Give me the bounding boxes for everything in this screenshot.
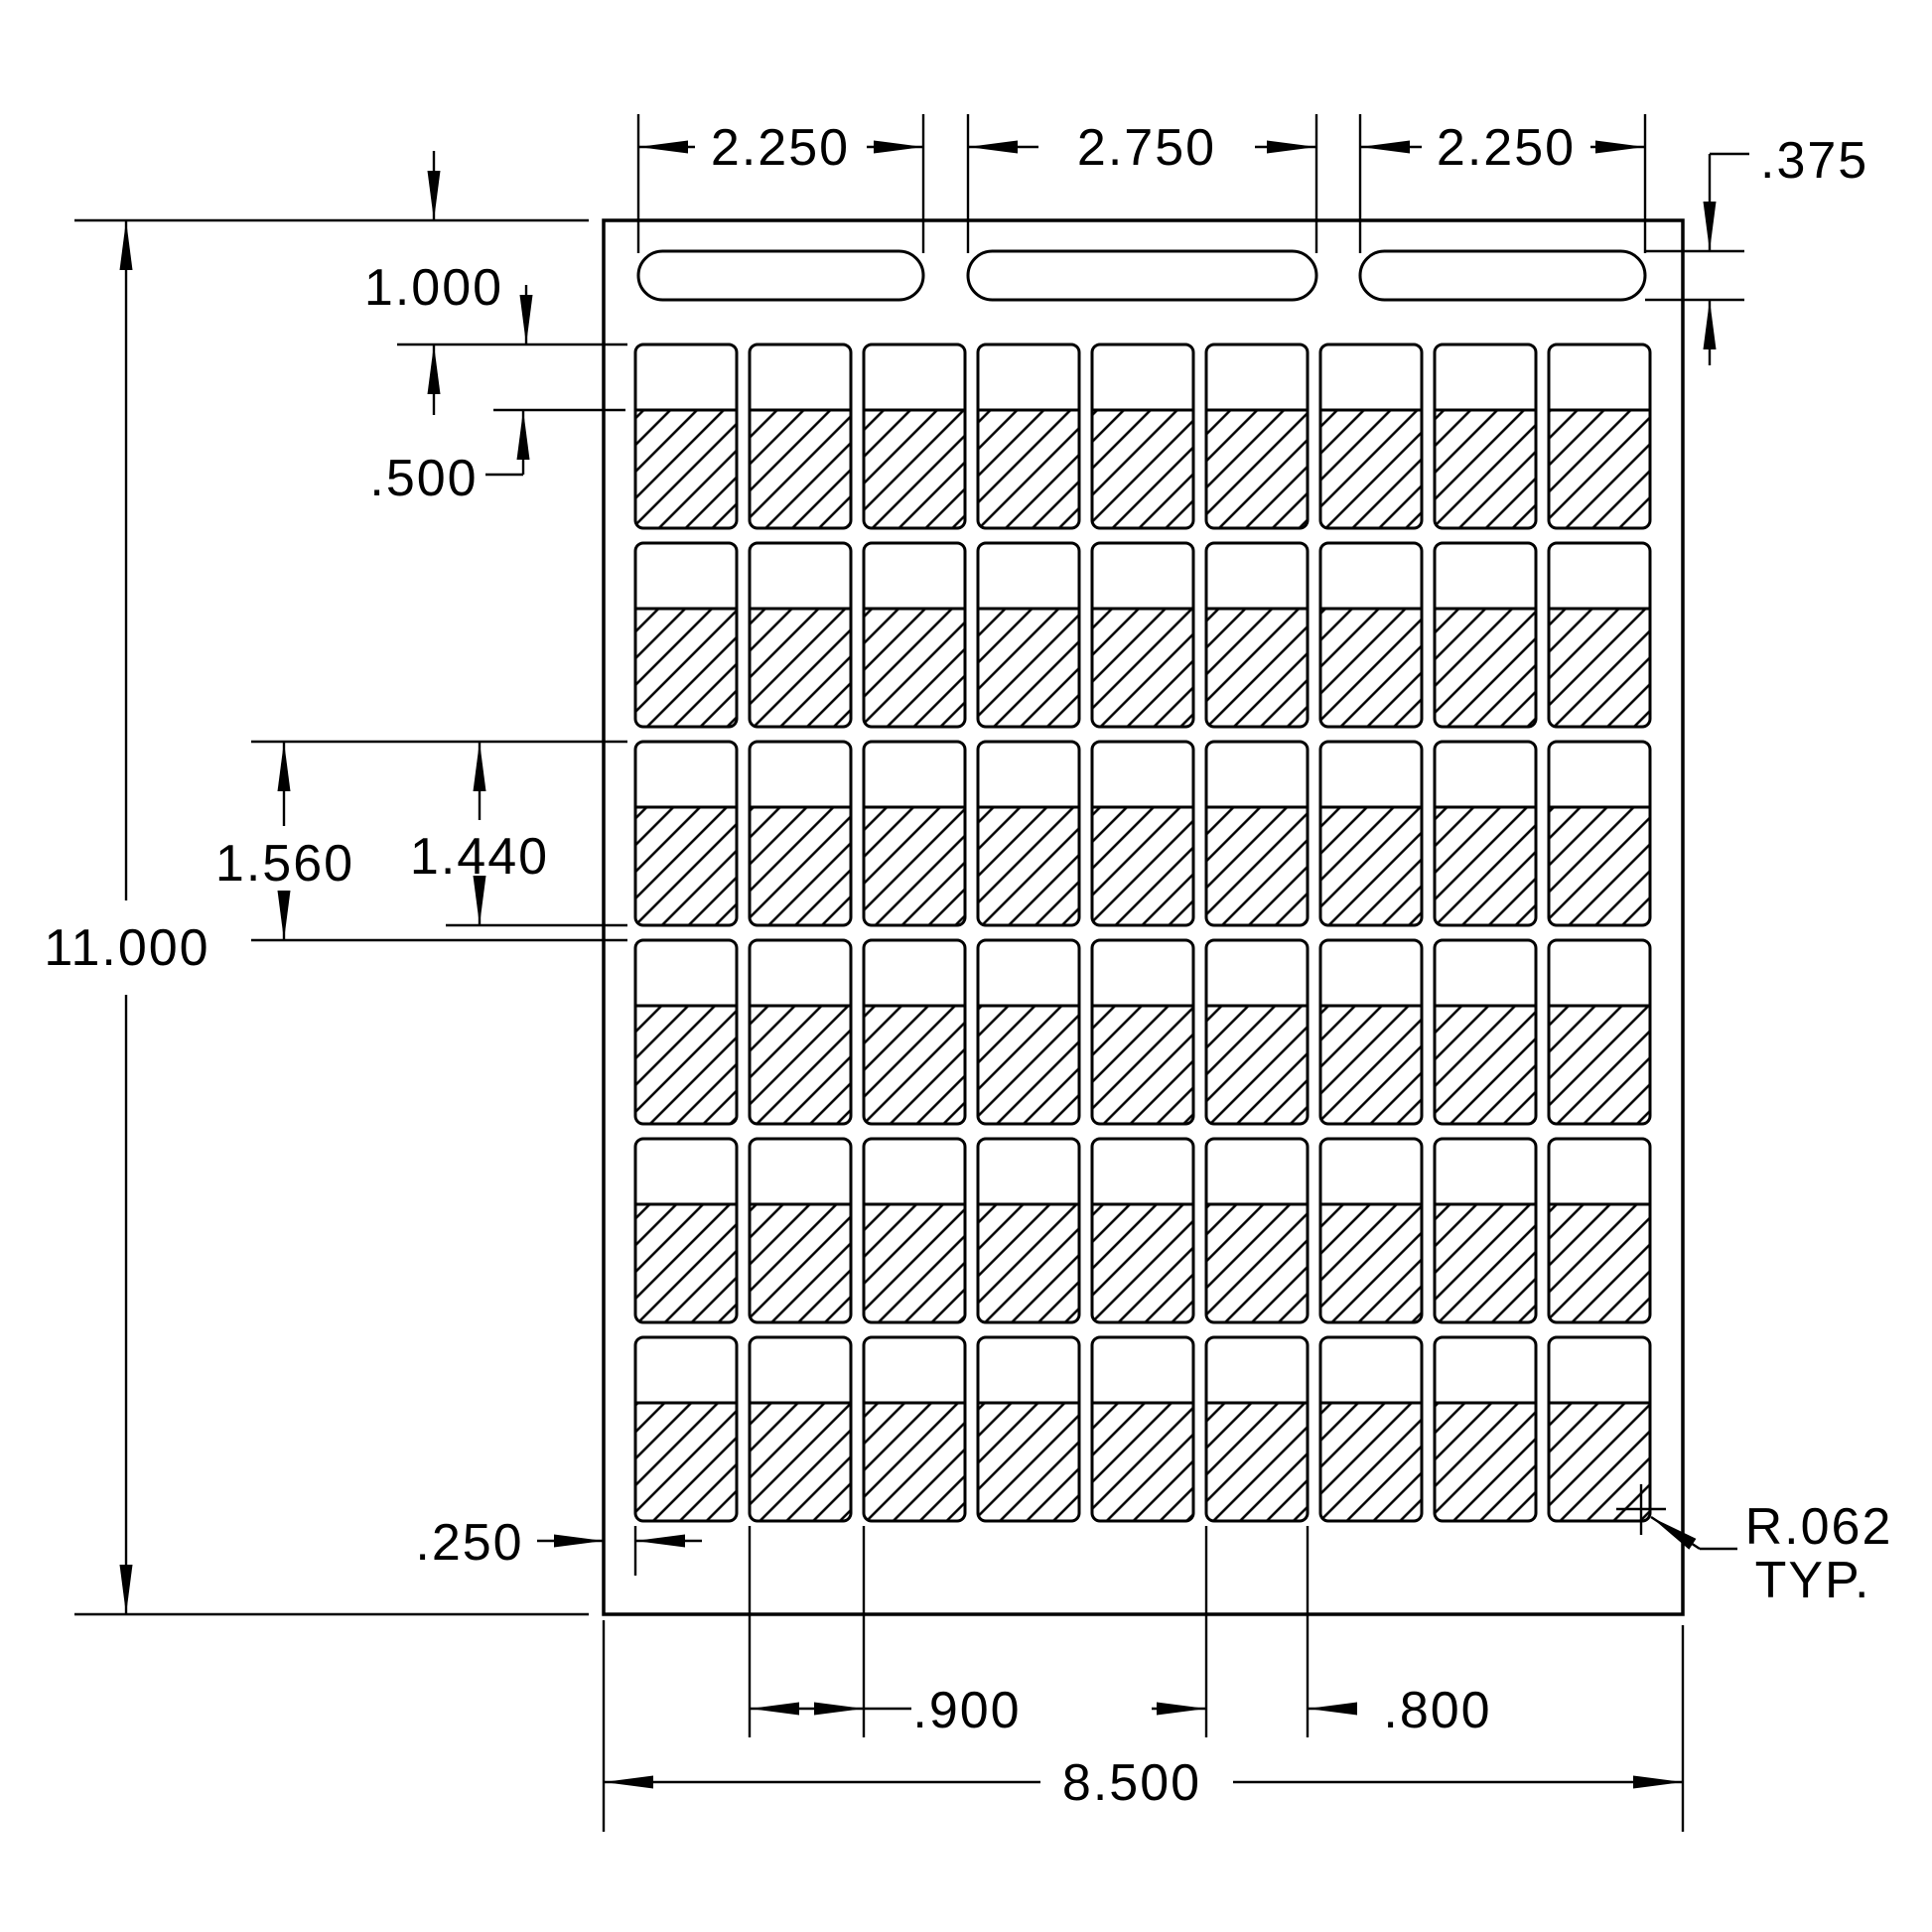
label-hatch-area bbox=[1092, 807, 1193, 925]
column-dimensions: .900 .800 bbox=[750, 1526, 1492, 1739]
label-hatch-area bbox=[1549, 1403, 1650, 1521]
dim-column-pitch: .900 bbox=[912, 1682, 1021, 1739]
dim-slot-width-center: 2.750 bbox=[1077, 119, 1216, 177]
drawing-canvas: 2.250 2.750 2.250 .375 1.000 .500 1.560 … bbox=[0, 0, 1932, 1932]
label-hatch-area bbox=[635, 410, 737, 528]
label-hatch-area bbox=[978, 1403, 1079, 1521]
label-hatch-area bbox=[750, 807, 851, 925]
dim-sheet-width: 8.500 bbox=[1062, 1754, 1201, 1812]
label-hatch-area bbox=[1092, 1403, 1193, 1521]
left-margin-dimension: .250 bbox=[415, 1514, 702, 1576]
label-hatch-area bbox=[750, 1204, 851, 1322]
label-hatch-area bbox=[635, 1403, 737, 1521]
sheet-height-dimension: 11.000 bbox=[44, 220, 589, 1614]
sheet-width-dimension: 8.500 bbox=[604, 1620, 1683, 1832]
feed-slot bbox=[1360, 251, 1645, 300]
label-hatch-area bbox=[978, 807, 1079, 925]
label-hatch-area bbox=[635, 609, 737, 727]
label-hatch-area bbox=[864, 1006, 965, 1124]
note-corner-radius-typ: TYP. bbox=[1755, 1552, 1871, 1609]
label-hatch-area bbox=[635, 1204, 737, 1322]
label-hatch-area bbox=[1320, 410, 1422, 528]
label-hatch-area bbox=[635, 807, 737, 925]
label-hatch-area bbox=[1549, 807, 1650, 925]
label-hatch-area bbox=[978, 410, 1079, 528]
label-hatch-area bbox=[1320, 1006, 1422, 1124]
label-hatch-area bbox=[1206, 1204, 1308, 1322]
label-hatch-area bbox=[1549, 1204, 1650, 1322]
label-hatch-area bbox=[978, 1006, 1079, 1124]
label-hatch-area bbox=[1435, 1006, 1536, 1124]
label-hatch-area bbox=[1092, 410, 1193, 528]
label-hatch-area bbox=[1206, 807, 1308, 925]
feed-slot bbox=[968, 251, 1316, 300]
label-hatch-area bbox=[1206, 609, 1308, 727]
dim-top-margin: 1.000 bbox=[364, 259, 503, 317]
label-hatch-area bbox=[750, 609, 851, 727]
note-corner-radius: R.062 bbox=[1745, 1498, 1893, 1556]
dim-sheet-height: 11.000 bbox=[44, 919, 209, 977]
label-hatch-area bbox=[750, 1006, 851, 1124]
corner-radius-note: R.062 TYP. bbox=[1616, 1484, 1892, 1609]
dim-hatch-inset: .500 bbox=[369, 450, 478, 507]
label-hatch-area bbox=[1320, 1204, 1422, 1322]
label-hatch-area bbox=[978, 1204, 1079, 1322]
top-left-dimensions: 1.000 .500 bbox=[74, 151, 627, 507]
label-hatch-area bbox=[864, 1403, 965, 1521]
label-hatch-area bbox=[1320, 1403, 1422, 1521]
label-hatch-area bbox=[1435, 1204, 1536, 1322]
label-sheet-technical-drawing: 2.250 2.750 2.250 .375 1.000 .500 1.560 … bbox=[0, 0, 1932, 1932]
dim-slot-width-left: 2.250 bbox=[711, 119, 850, 177]
label-hatch-area bbox=[1435, 609, 1536, 727]
label-hatch-area bbox=[1435, 807, 1536, 925]
row-pitch-dimensions: 1.560 1.440 bbox=[215, 742, 627, 940]
dim-label-height: 1.440 bbox=[410, 828, 549, 886]
label-hatch-area bbox=[864, 807, 965, 925]
label-hatch-area bbox=[1206, 410, 1308, 528]
label-hatch-area bbox=[978, 609, 1079, 727]
dim-row-pitch: 1.560 bbox=[215, 835, 354, 893]
label-hatch-area bbox=[1092, 1204, 1193, 1322]
label-hatch-area bbox=[635, 1006, 737, 1124]
label-hatch-area bbox=[1206, 1403, 1308, 1521]
label-hatch-area bbox=[864, 410, 965, 528]
label-hatch-area bbox=[750, 410, 851, 528]
label-grid bbox=[635, 251, 1650, 1521]
dim-label-width: .800 bbox=[1383, 1682, 1491, 1739]
label-hatch-area bbox=[1549, 1006, 1650, 1124]
label-hatch-area bbox=[1435, 1403, 1536, 1521]
label-hatch-area bbox=[1320, 609, 1422, 727]
label-hatch-area bbox=[864, 1204, 965, 1322]
label-hatch-area bbox=[1320, 807, 1422, 925]
dim-slot-width-right: 2.250 bbox=[1437, 119, 1576, 177]
label-hatch-area bbox=[1549, 609, 1650, 727]
label-hatch-area bbox=[864, 609, 965, 727]
dim-left-margin: .250 bbox=[415, 1514, 523, 1572]
label-hatch-area bbox=[1549, 410, 1650, 528]
label-hatch-area bbox=[750, 1403, 851, 1521]
top-width-dimensions: 2.250 2.750 2.250 bbox=[638, 114, 1645, 253]
label-hatch-area bbox=[1092, 1006, 1193, 1124]
label-hatch-area bbox=[1206, 1006, 1308, 1124]
leader-arrow bbox=[1651, 1517, 1700, 1549]
label-hatch-area bbox=[1435, 410, 1536, 528]
dim-slot-height: .375 bbox=[1760, 132, 1868, 190]
slot-height-dimension: .375 bbox=[1645, 132, 1868, 365]
feed-slot bbox=[638, 251, 923, 300]
label-hatch-area bbox=[1092, 609, 1193, 727]
